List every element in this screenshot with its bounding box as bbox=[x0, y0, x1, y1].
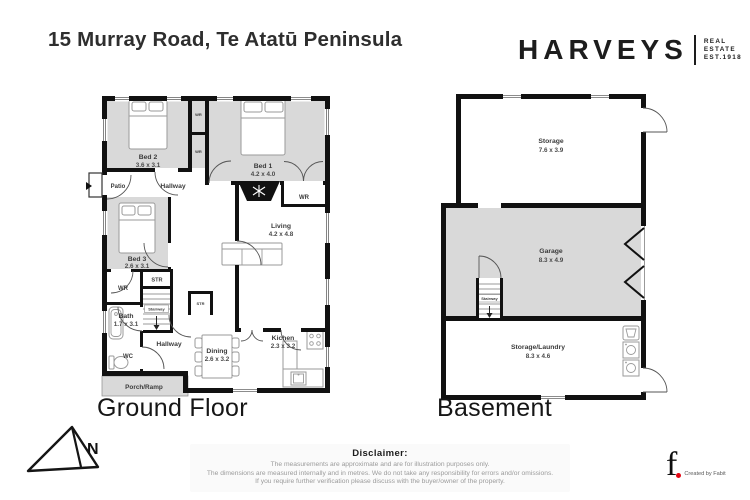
room-dims-dining: 2.6 x 3.2 bbox=[205, 356, 230, 363]
patio-deck bbox=[86, 173, 102, 197]
room-label-stairway-ground: Stairway bbox=[148, 307, 165, 312]
disclaimer-heading: Disclaimer: bbox=[190, 448, 570, 459]
room-label-hallway-upper: Hallway bbox=[160, 183, 186, 190]
disclaimer-line-2: The dimensions are measured internally a… bbox=[190, 470, 570, 479]
room-dims-bed3: 2.6 x 3.1 bbox=[125, 263, 150, 270]
room-dims-garage: 8.3 x 4.9 bbox=[539, 257, 564, 264]
washer-icon bbox=[623, 342, 639, 358]
room-label-bed3: Bed 3 bbox=[128, 256, 147, 263]
dryer-icon bbox=[623, 360, 639, 376]
sink-icon bbox=[291, 372, 306, 385]
room-label-storage-laundry: Storage/Laundry bbox=[511, 344, 565, 351]
stove-icon bbox=[307, 331, 323, 349]
brand-name: HARVEYS bbox=[518, 34, 688, 66]
bed-icon-bed2 bbox=[129, 99, 167, 149]
room-dims-bed1: 4.2 x 4.0 bbox=[251, 171, 276, 178]
room-label-stairway-basement: Stairway bbox=[481, 296, 498, 301]
room-label-garage: Garage bbox=[539, 248, 563, 255]
harveys-logo: HARVEYS REAL ESTATE EST.1918 bbox=[518, 34, 742, 66]
brand-sub3: EST.1918 bbox=[704, 54, 742, 62]
brand-sub1: REAL bbox=[704, 38, 742, 46]
room-label-str-stairs: STR bbox=[151, 278, 162, 284]
room-dims-storage-laundry: 8.3 x 4.6 bbox=[526, 353, 551, 360]
room-dims-living: 4.2 x 4.8 bbox=[269, 231, 294, 238]
room-label-wr-closet-bottom: WR bbox=[195, 149, 202, 154]
room-label-storage: Storage bbox=[538, 138, 564, 145]
fabit-logo: f Created by Fabit bbox=[666, 448, 726, 482]
room-label-dining: Dining bbox=[206, 348, 227, 355]
room-label-porch: Porch/Ramp bbox=[125, 384, 163, 391]
brand-sub2: ESTATE bbox=[704, 46, 742, 54]
disclaimer-line-1: The measurements are approximate and are… bbox=[190, 461, 570, 470]
room-label-hallway-lower: Hallway bbox=[156, 341, 182, 348]
room-label-wr-bed3: WR bbox=[118, 286, 129, 292]
floorplan-basement: Storage 7.6 x 3.9 Garage 8.3 x 4.9 Stora… bbox=[433, 88, 678, 403]
bed-icon-bed3 bbox=[119, 203, 155, 253]
bed-icon-bed1 bbox=[241, 99, 285, 155]
room-dims-storage: 7.6 x 3.9 bbox=[539, 147, 564, 154]
brand-divider bbox=[694, 35, 696, 65]
room-dims-kitchen: 2.3 x 3.2 bbox=[271, 343, 296, 350]
page-title: 15 Murray Road, Te Atatū Peninsula bbox=[48, 28, 402, 52]
room-dims-bath: 1.7 x 3.1 bbox=[114, 321, 139, 328]
room-dims-bed2: 3.6 x 3.1 bbox=[136, 162, 161, 169]
fabit-red-dot-icon bbox=[676, 473, 681, 478]
room-label-kitchen: Kichen bbox=[272, 335, 295, 342]
laundry-tub-icon bbox=[623, 326, 639, 340]
floorplan-ground-floor: Bed 2 3.6 x 3.1 Bed 1 4.2 x 4.0 Bed 3 2.… bbox=[85, 93, 345, 405]
disclaimer: Disclaimer: The measurements are approxi… bbox=[190, 444, 570, 492]
room-label-living: Living bbox=[271, 223, 291, 230]
room-label-wr-closet-top: WR bbox=[195, 112, 202, 117]
room-label-wr-bed1: WR bbox=[299, 195, 310, 201]
room-label-bath: Bath bbox=[118, 313, 133, 320]
room-label-bed2: Bed 2 bbox=[139, 154, 158, 161]
room-label-wc: WC bbox=[123, 354, 134, 360]
room-label-bed1: Bed 1 bbox=[254, 163, 273, 170]
fabit-credit-text: Created by Fabit bbox=[684, 471, 725, 477]
basement-title: Basement bbox=[437, 394, 552, 423]
north-arrow-icon: N bbox=[25, 424, 135, 484]
room-label-str-hall: STR bbox=[197, 301, 205, 306]
north-label: N bbox=[87, 441, 99, 458]
ground-floor-title: Ground Floor bbox=[97, 394, 248, 423]
disclaimer-line-3: If you require further verification plea… bbox=[190, 478, 570, 487]
room-label-patio: Patio bbox=[111, 184, 126, 190]
